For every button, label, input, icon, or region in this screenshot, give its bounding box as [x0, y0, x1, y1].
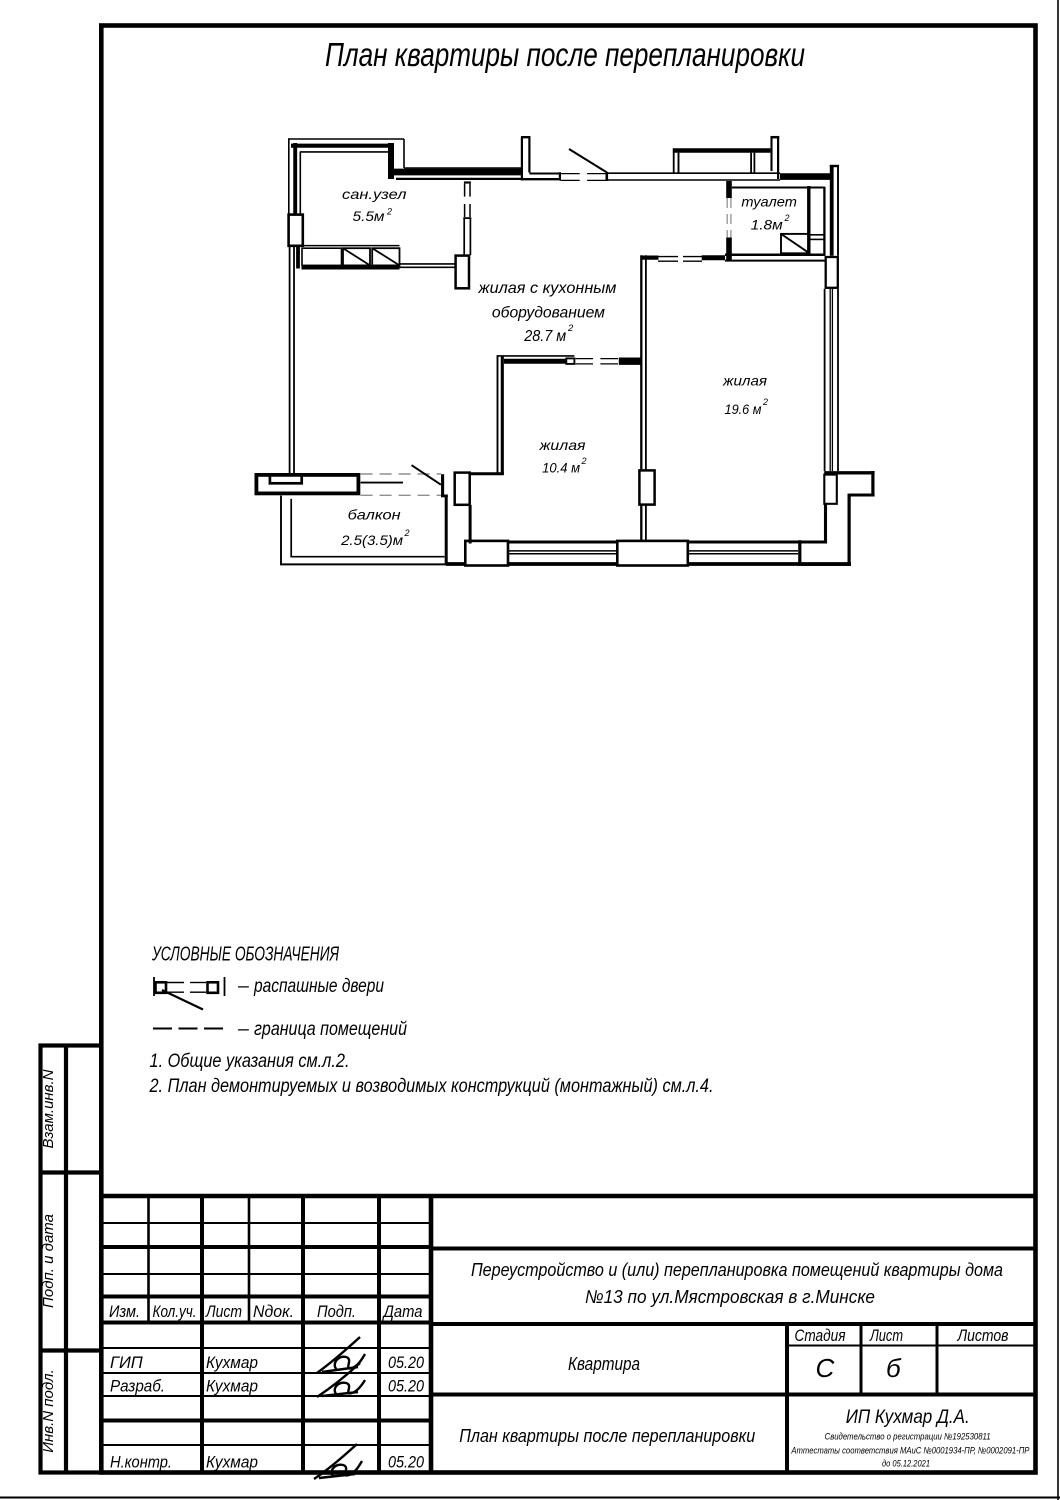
- svg-text:2: 2: [784, 213, 790, 223]
- svg-text:сан.узел: сан.узел: [342, 186, 407, 202]
- svg-text:Квартира: Квартира: [568, 1353, 640, 1374]
- svg-text:2: 2: [581, 456, 587, 466]
- svg-text:2: 2: [567, 323, 574, 334]
- svg-text:граница помещений: граница помещений: [254, 1018, 407, 1040]
- svg-text:28.7 м: 28.7 м: [523, 328, 566, 345]
- svg-text:УСЛОВНЫЕ ОБОЗНАЧЕНИЯ: УСЛОВНЫЕ ОБОЗНАЧЕНИЯ: [151, 943, 339, 966]
- svg-text:1. Общие указания см.л.2.: 1. Общие указания см.л.2.: [150, 1050, 350, 1072]
- svg-text:распашные двери: распашные двери: [253, 975, 384, 997]
- svg-text:Аттестаты соответствия МАиС №0: Аттестаты соответствия МАиС №0001934-ПР,…: [791, 1446, 1030, 1457]
- svg-text:Кухмар: Кухмар: [206, 1454, 258, 1472]
- svg-text:жилая: жилая: [538, 437, 586, 453]
- svg-text:10.4 м: 10.4 м: [542, 460, 580, 476]
- svg-text:19.6 м: 19.6 м: [725, 401, 762, 417]
- svg-text:Взам.инв.N: Взам.инв.N: [40, 1069, 57, 1148]
- svg-text:План квартиры после перепланир: План квартиры после перепланировки: [459, 1425, 755, 1446]
- svg-text:Лист: Лист: [205, 1303, 242, 1321]
- svg-text:2: 2: [386, 207, 392, 217]
- svg-text:Инв.N подл.: Инв.N подл.: [40, 1369, 57, 1453]
- svg-text:План квартиры после перепланир: План квартиры после перепланировки: [325, 36, 805, 73]
- svg-text:туалет: туалет: [741, 194, 797, 210]
- svg-text:до 05.12.2021: до 05.12.2021: [882, 1459, 930, 1470]
- svg-text:Подп. и дата: Подп. и дата: [40, 1214, 57, 1308]
- svg-text:Дата: Дата: [382, 1303, 423, 1321]
- svg-text:Лист: Лист: [869, 1327, 903, 1345]
- svg-text:05.20: 05.20: [388, 1454, 425, 1472]
- svg-text:2. План демонтируемых и возвод: 2. План демонтируемых и возводимых конст…: [149, 1075, 714, 1097]
- svg-text:5.5м: 5.5м: [353, 208, 385, 224]
- svg-text:2: 2: [404, 528, 410, 538]
- svg-text:Кухмар: Кухмар: [206, 1378, 258, 1396]
- svg-text:Подп.: Подп.: [317, 1303, 356, 1321]
- svg-text:2: 2: [762, 397, 768, 407]
- svg-text:Переустройство и (или) перепла: Переустройство и (или) перепланировка по…: [471, 1259, 1003, 1280]
- svg-text:ИП Кухмар Д.А.: ИП Кухмар Д.А.: [846, 1407, 970, 1428]
- svg-text:Разраб.: Разраб.: [110, 1378, 165, 1396]
- svg-text:жилая: жилая: [722, 373, 768, 389]
- svg-text:жилая с кухонным: жилая с кухонным: [477, 280, 616, 297]
- svg-text:С: С: [816, 1353, 835, 1383]
- svg-text:б: б: [886, 1353, 902, 1383]
- svg-text:–: –: [237, 975, 249, 997]
- svg-text:Свидетельство о регистрации №1: Свидетельство о регистрации №192530811: [825, 1432, 991, 1443]
- svg-text:Листов: Листов: [957, 1327, 1009, 1345]
- svg-text:Н.контр.: Н.контр.: [110, 1454, 172, 1472]
- svg-text:Стадия: Стадия: [795, 1327, 846, 1345]
- svg-text:1.8м: 1.8м: [751, 217, 783, 233]
- svg-text:05.20: 05.20: [388, 1378, 425, 1396]
- svg-text:Nдок.: Nдок.: [253, 1303, 294, 1321]
- svg-text:№13 по ул.Мястровская в г.Минс: №13 по ул.Мястровская в г.Минске: [585, 1286, 875, 1307]
- svg-text:балкон: балкон: [348, 507, 401, 523]
- svg-text:оборудованием: оборудованием: [492, 305, 605, 322]
- svg-text:Кол.уч.: Кол.уч.: [153, 1303, 197, 1321]
- svg-text:05.20: 05.20: [388, 1354, 425, 1372]
- svg-text:Кухмар: Кухмар: [206, 1354, 258, 1372]
- svg-text:–: –: [237, 1018, 249, 1040]
- svg-text:2.5(3.5)м: 2.5(3.5)м: [340, 532, 403, 548]
- svg-text:Изм.: Изм.: [109, 1303, 140, 1321]
- svg-text:ГИП: ГИП: [110, 1354, 143, 1372]
